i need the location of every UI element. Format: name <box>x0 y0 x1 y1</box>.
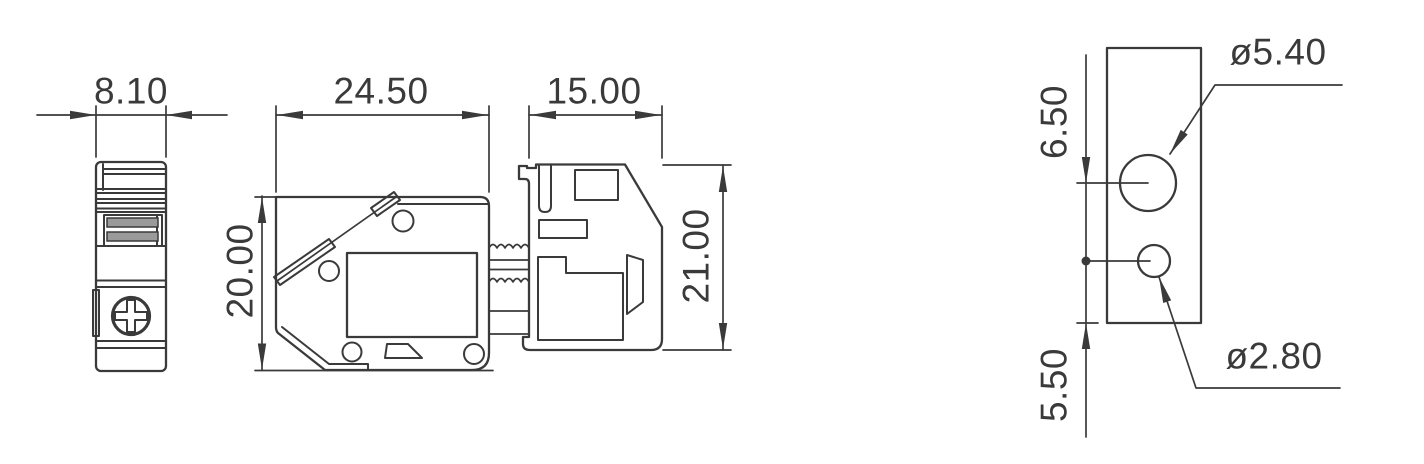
mounting-hole <box>464 344 484 364</box>
leader-large-hole: ø5.40 <box>1170 32 1342 155</box>
dial-rib <box>107 218 158 227</box>
connector-view: 15.00 21.00 <box>519 71 731 351</box>
flex-cable-wave <box>489 245 529 249</box>
bottom-tab <box>385 344 422 358</box>
side-body-details <box>93 164 166 348</box>
technical-drawing-canvas: 8.10 <box>0 0 1424 464</box>
mounting-hole <box>393 211 414 232</box>
side-view: 8.10 <box>37 71 227 372</box>
terminal-window <box>575 170 618 200</box>
sensor-body-details <box>274 192 489 370</box>
dim-label-upper-offset: 6.50 <box>1034 85 1075 159</box>
sensor-body-outline <box>276 197 489 370</box>
hole-detail-view: 6.50 5.50 ø5.40 ø2.80 <box>1034 32 1343 438</box>
dim-label-connector-width: 15.00 <box>546 71 641 112</box>
dim-side-width: 8.10 <box>37 71 227 158</box>
cable-coupling <box>489 245 529 335</box>
dim-hole-offsets: 6.50 5.50 <box>1034 55 1151 437</box>
front-view: 24.50 20.00 <box>220 71 494 371</box>
chain-dimension-dot <box>1082 257 1091 266</box>
drawing-sheet: 8.10 <box>0 0 1424 464</box>
dim-front-width: 24.50 <box>276 71 489 193</box>
dim-label-lower-offset: 5.50 <box>1034 348 1075 422</box>
flex-cable-wave <box>489 279 529 283</box>
dim-label-front-height: 20.00 <box>220 223 261 318</box>
adjustment-screw <box>113 298 150 335</box>
leader-small-hole: ø2.80 <box>1159 277 1340 388</box>
mounting-hole <box>319 261 339 281</box>
dim-label-side-width: 8.10 <box>94 71 168 112</box>
phillips-cross-icon <box>115 300 147 332</box>
dial-rib <box>107 232 158 241</box>
dim-label-small-hole-dia: ø2.80 <box>1225 336 1322 377</box>
connector-body-details <box>538 165 643 340</box>
mounting-hole <box>343 343 362 362</box>
dim-label-connector-height: 21.00 <box>676 208 717 303</box>
dim-label-front-width: 24.50 <box>333 71 428 112</box>
side-rib <box>627 255 643 314</box>
dim-connector-height: 21.00 <box>663 165 731 350</box>
latch-slot <box>539 165 551 212</box>
dim-connector-width: 15.00 <box>529 71 662 159</box>
dim-label-large-hole-dia: ø5.40 <box>1229 32 1326 73</box>
cable-entry-block <box>538 257 623 340</box>
display-window <box>347 253 477 337</box>
terminal-window <box>539 220 587 238</box>
